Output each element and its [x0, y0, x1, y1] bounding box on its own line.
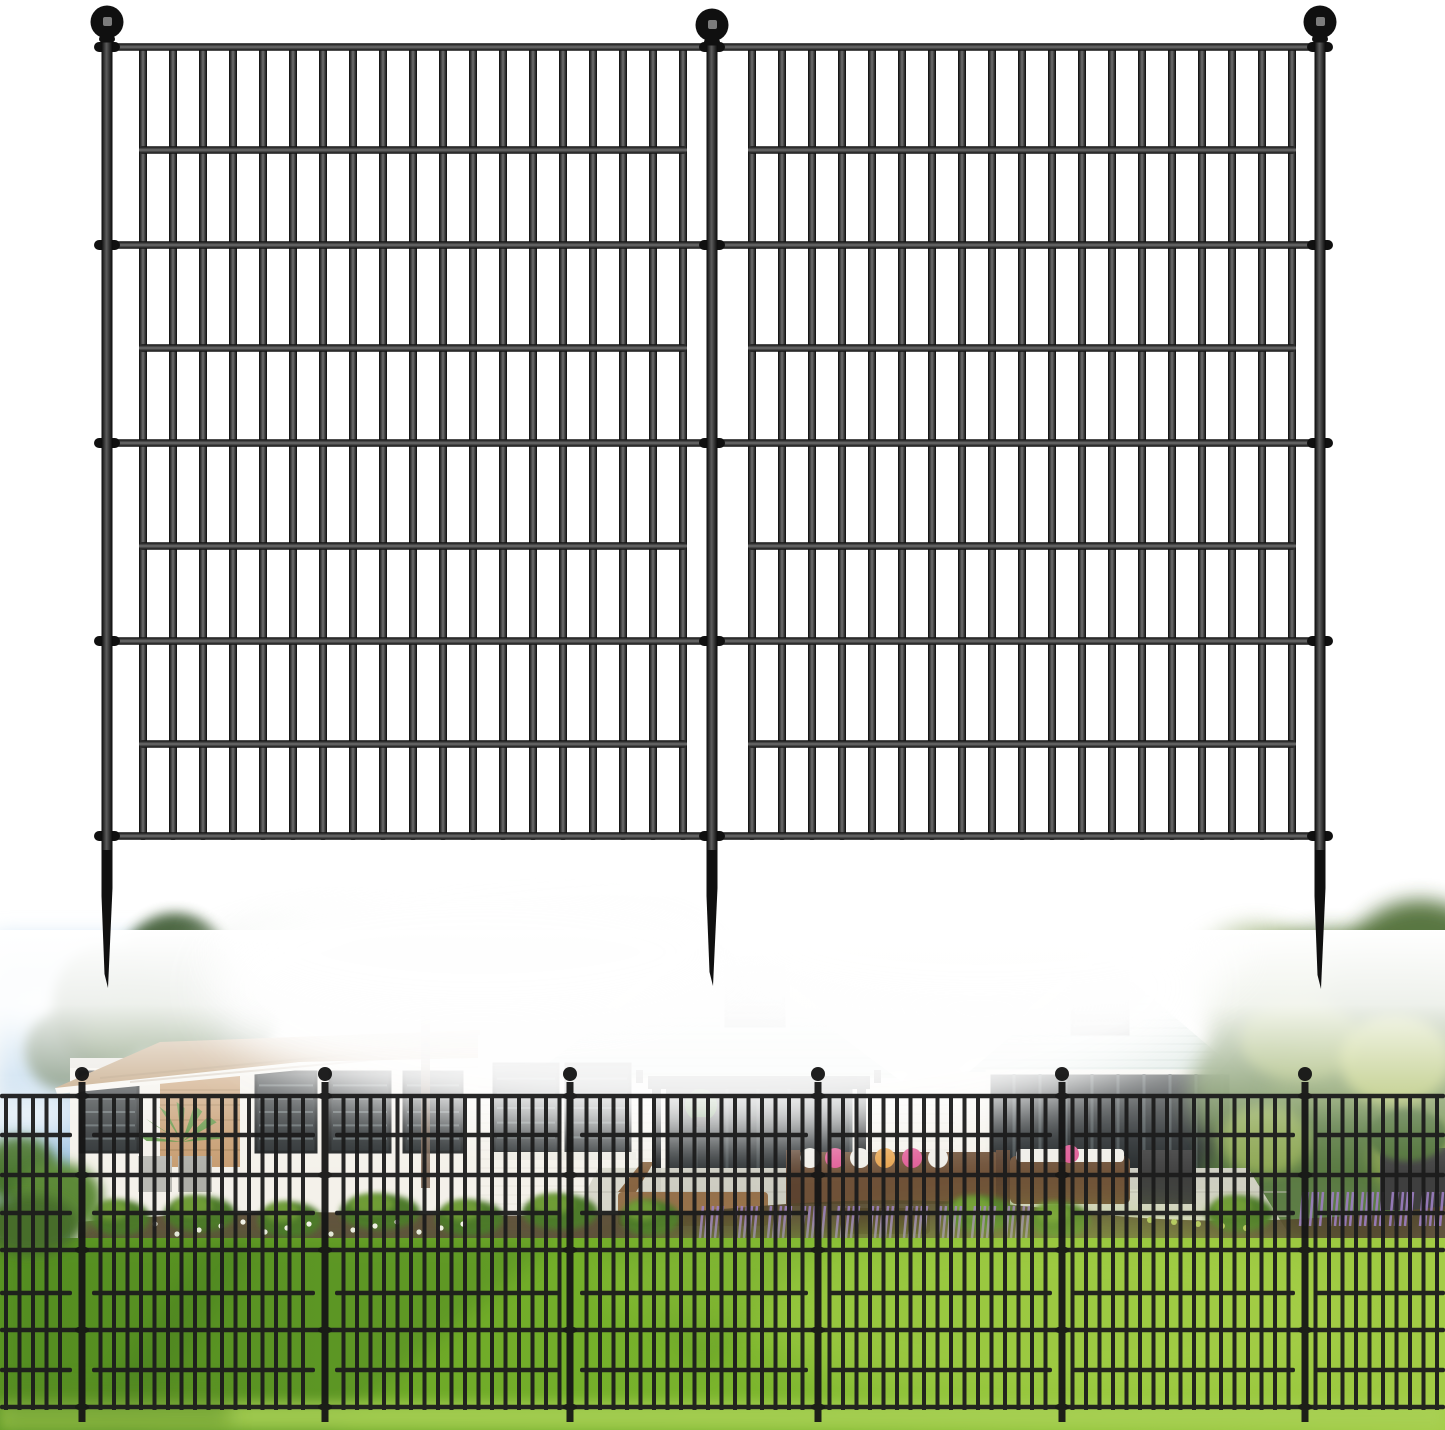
garden-fence-bar: [423, 1096, 427, 1410]
garden-fence-rail: [0, 1328, 1445, 1333]
garden-fence-bar: [1314, 1096, 1318, 1410]
garden-fence-ball-finial: [1055, 1067, 1069, 1081]
garden-fence-inset-rail: [580, 1133, 808, 1138]
fence-inset-rail: [748, 740, 1296, 748]
garden-fence-bar: [220, 1096, 224, 1410]
garden-fence-post: [322, 1082, 329, 1422]
garden-fence-inset-rail: [1315, 1133, 1445, 1138]
garden-fence-bar: [1273, 1096, 1277, 1410]
garden-fence-inset-rail: [92, 1211, 315, 1216]
garden-fence-inset-rail: [335, 1291, 560, 1296]
garden-fence-bar: [31, 1096, 35, 1410]
shrub-highlight: [443, 1200, 480, 1220]
garden-fence-bar: [733, 1096, 737, 1410]
garden-fence-inset-rail: [92, 1291, 315, 1296]
product-fence-illustration: [91, 6, 1337, 990]
garden-fence-post: [815, 1082, 822, 1422]
garden-fence-ball-finial: [811, 1067, 825, 1081]
garden-fence-inset-rail: [828, 1291, 1052, 1296]
white-flower: [416, 1229, 421, 1234]
garden-fence-bar: [18, 1096, 22, 1410]
fade-glow: [220, 877, 740, 1027]
garden-fence-bar: [1138, 1096, 1142, 1410]
garden-fence-bar: [1233, 1096, 1237, 1410]
fence-rail: [708, 43, 1324, 51]
garden-fence-inset-rail: [0, 1368, 72, 1373]
garden-fence-bar: [99, 1096, 103, 1410]
fence-inset-rail: [139, 344, 687, 352]
garden-fence-bar: [585, 1096, 589, 1410]
garden-fence-bar: [490, 1096, 494, 1410]
fence-post: [707, 36, 718, 864]
garden-fence-bar: [234, 1096, 238, 1410]
garden-fence-bar: [274, 1096, 278, 1410]
garden-fence-bar: [544, 1096, 548, 1410]
fence-rail: [103, 241, 716, 249]
garden-fence-bar: [139, 1096, 143, 1410]
garden-fence-inset-rail: [828, 1211, 1052, 1216]
garden-fence-bar: [652, 1096, 656, 1410]
garden-fence-bar: [949, 1096, 953, 1410]
garden-fence-bar: [693, 1096, 697, 1410]
garden-fence-inset-rail: [0, 1133, 72, 1138]
garden-fence-bar: [841, 1096, 845, 1410]
garden-fence-bar: [1111, 1096, 1115, 1410]
garden-fence-bar: [1098, 1096, 1102, 1410]
fence-rail: [103, 439, 716, 447]
fence-inset-rail: [748, 146, 1296, 154]
garden-fence-bar: [1408, 1096, 1412, 1410]
garden-fence-inset-rail: [828, 1368, 1052, 1373]
garden-fence-bar: [1287, 1096, 1291, 1410]
garden-fence-inset-rail: [0, 1291, 72, 1296]
white-flower: [196, 1227, 201, 1232]
fence-rail: [103, 43, 716, 51]
fence-rail: [708, 637, 1324, 645]
garden-fence-bar: [1422, 1096, 1426, 1410]
garden-fence-inset-rail: [580, 1291, 808, 1296]
ball-finial-glint: [708, 20, 717, 29]
garden-fence-inset-rail: [580, 1211, 808, 1216]
garden-fence-bar: [342, 1096, 346, 1410]
garden-fence-bar: [166, 1096, 170, 1410]
garden-fence-bar: [450, 1096, 454, 1410]
white-flower: [306, 1221, 311, 1226]
garden-fence-bar: [1246, 1096, 1250, 1410]
garden-fence-bar: [760, 1096, 764, 1410]
garden-fence-inset-rail: [1072, 1368, 1295, 1373]
garden-fence-inset-rail: [1072, 1133, 1295, 1138]
garden-fence-bar: [706, 1096, 710, 1410]
garden-fence-inset-rail: [1072, 1211, 1295, 1216]
garden-fence-bar: [1435, 1096, 1439, 1410]
white-flower: [240, 1219, 245, 1224]
garden-fence-inset-rail: [580, 1368, 808, 1373]
garden-fence-bar: [639, 1096, 643, 1410]
garden-fence-post: [79, 1082, 86, 1422]
garden-fence-bar: [207, 1096, 211, 1410]
garden-fence-bar: [909, 1096, 913, 1410]
garden-fence-bar: [787, 1096, 791, 1410]
garden-fence-inset-rail: [828, 1133, 1052, 1138]
white-flower: [174, 1231, 179, 1236]
garden-fence-inset-rail: [1315, 1211, 1445, 1216]
garden-fence-rail: [0, 1094, 1445, 1099]
garden-fence-ball-finial: [563, 1067, 577, 1081]
garden-fence-bar: [517, 1096, 521, 1410]
garden-fence-inset-rail: [1315, 1368, 1445, 1373]
garden-fence-bar: [963, 1096, 967, 1410]
white-flower: [328, 1231, 333, 1236]
garden-fence-bar: [4, 1096, 8, 1410]
fence-product-scene: [0, 0, 1445, 1430]
fence-rail: [103, 637, 716, 645]
garden-fence-ball-finial: [75, 1067, 89, 1081]
garden-fence-bar: [598, 1096, 602, 1410]
yellow-flower: [1171, 1219, 1177, 1225]
garden-fence-bar: [1084, 1096, 1088, 1410]
garden-fence-bar: [855, 1096, 859, 1410]
garden-fence-bar: [1044, 1096, 1048, 1410]
garden-fence-bar: [558, 1096, 562, 1410]
garden-fence-bar: [801, 1096, 805, 1410]
ball-finial-glint: [103, 17, 112, 26]
garden-fence-bar: [409, 1096, 413, 1410]
fence-rail: [103, 832, 716, 840]
garden-fence-bar: [396, 1096, 400, 1410]
fence-post: [1315, 36, 1326, 864]
garden-fence-bar: [1125, 1096, 1129, 1410]
garden-fence-bar: [1260, 1096, 1264, 1410]
garden-fence-bar: [301, 1096, 305, 1410]
garden-fence-bar: [369, 1096, 373, 1410]
garden-fence-bar: [126, 1096, 130, 1410]
garden-fence-bar: [990, 1096, 994, 1410]
fade-glow: [720, 878, 1240, 1018]
garden-fence-inset-rail: [1072, 1291, 1295, 1296]
garden-fence-rail: [0, 1173, 1445, 1178]
garden-fence-bar: [882, 1096, 886, 1410]
white-flower: [372, 1223, 377, 1228]
garden-fence-bar: [45, 1096, 49, 1410]
garden-fence-inset-rail: [335, 1211, 560, 1216]
garden-fence-bar: [58, 1096, 62, 1410]
fence-inset-rail: [139, 146, 687, 154]
garden-fence-bar: [1368, 1096, 1372, 1410]
garden-fence-bar: [747, 1096, 751, 1410]
garden-fence-rail: [0, 1248, 1445, 1253]
garden-fence-bar: [463, 1096, 467, 1410]
garden-fence-bar: [679, 1096, 683, 1410]
garden-fence-rail: [0, 1405, 1445, 1410]
garden-fence-bar: [666, 1096, 670, 1410]
garden-fence-post: [1302, 1082, 1309, 1422]
garden-fence-bar: [774, 1096, 778, 1410]
garden-fence-bar: [868, 1096, 872, 1410]
garden-fence-bar: [531, 1096, 535, 1410]
garden-fence-bar: [477, 1096, 481, 1410]
fence-inset-rail: [748, 344, 1296, 352]
garden-fence-bar: [1017, 1096, 1021, 1410]
garden-fence-bar: [1219, 1096, 1223, 1410]
garden-fence-bar: [625, 1096, 629, 1410]
garden-fence-bar: [895, 1096, 899, 1410]
garden-fence-bar: [382, 1096, 386, 1410]
garden-fence-bar: [180, 1096, 184, 1410]
garden-fence-bar: [1395, 1096, 1399, 1410]
product-image: [0, 0, 1445, 1430]
fence-rail: [708, 439, 1324, 447]
garden-fence-post: [1059, 1082, 1066, 1422]
garden-fence-bar: [355, 1096, 359, 1410]
fence-inset-rail: [139, 542, 687, 550]
garden-fence-bar: [436, 1096, 440, 1410]
fence-inset-rail: [139, 740, 687, 748]
garden-fence-bar: [922, 1096, 926, 1410]
fence-rail: [708, 832, 1324, 840]
garden-fence-bar: [261, 1096, 265, 1410]
garden-fence-bar: [1354, 1096, 1358, 1410]
garden-fence-bar: [1192, 1096, 1196, 1410]
garden-fence-bar: [612, 1096, 616, 1410]
ball-finial-glint: [1316, 17, 1325, 26]
garden-fence-bar: [1206, 1096, 1210, 1410]
garden-fence-bar: [504, 1096, 508, 1410]
garden-fence-bar: [193, 1096, 197, 1410]
garden-fence-bar: [828, 1096, 832, 1410]
garden-fence-inset-rail: [92, 1133, 315, 1138]
garden-fence-bar: [1381, 1096, 1385, 1410]
garden-fence-bar: [1152, 1096, 1156, 1410]
garden-fence-inset-rail: [1315, 1291, 1445, 1296]
garden-fence-inset-rail: [335, 1368, 560, 1373]
garden-fence-bar: [1071, 1096, 1075, 1410]
garden-fence-bar: [153, 1096, 157, 1410]
garden-fence-post: [567, 1082, 574, 1422]
garden-fence-bar: [112, 1096, 116, 1410]
garden-fence-bar: [247, 1096, 251, 1410]
garden-fence-inset-rail: [92, 1368, 315, 1373]
garden-fence-inset-rail: [335, 1133, 560, 1138]
garden-fence-bar: [1341, 1096, 1345, 1410]
fence-rail: [708, 241, 1324, 249]
fence-inset-rail: [748, 542, 1296, 550]
garden-fence-bar: [1165, 1096, 1169, 1410]
garden-fence-bar: [1030, 1096, 1034, 1410]
garden-fence-bar: [1179, 1096, 1183, 1410]
fence-post: [102, 36, 113, 864]
garden-fence-inset-rail: [0, 1211, 72, 1216]
garden-fence-bar: [1327, 1096, 1331, 1410]
white-flower: [350, 1227, 355, 1232]
garden-fence-ball-finial: [1298, 1067, 1312, 1081]
garden-fence-bar: [720, 1096, 724, 1410]
garden-fence-ball-finial: [318, 1067, 332, 1081]
garden-fence-bar: [936, 1096, 940, 1410]
garden-fence-bar: [288, 1096, 292, 1410]
garden-fence-bar: [976, 1096, 980, 1410]
garden-fence-bar: [1003, 1096, 1007, 1410]
